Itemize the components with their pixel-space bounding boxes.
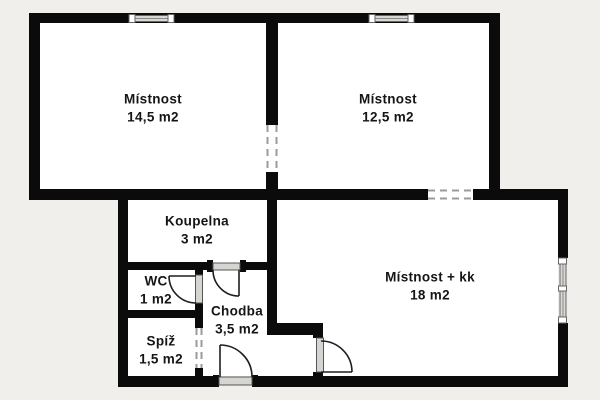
window-icon: [369, 15, 414, 23]
wall-right-bottom-exterior: [558, 189, 568, 258]
wall-center-partition: [266, 23, 278, 125]
door-frame-block: [207, 260, 213, 272]
room-name: Místnost + kk: [385, 269, 475, 287]
wall-left-bottom-exterior: [118, 189, 128, 387]
door-jamb: [196, 275, 203, 303]
top-section-floor: [40, 23, 489, 189]
door-jamb: [219, 377, 252, 385]
room-area: 3,5 m2: [211, 320, 263, 338]
room-area: 1,5 m2: [139, 350, 183, 368]
wall-bathroom-bottom: [128, 262, 207, 270]
room-name: Místnost: [124, 91, 182, 109]
door-jamb: [317, 338, 324, 372]
room-label-room1: Místnost 14,5 m2: [124, 91, 182, 126]
room-name: Chodba: [211, 303, 263, 321]
wall-wc-hallway: [195, 270, 203, 275]
wall-right-top-exterior: [489, 13, 500, 200]
room-label-wc: WC 1 m2: [140, 273, 172, 308]
room-name: Spíž: [139, 333, 183, 351]
wall-hallway-living: [267, 189, 277, 335]
door-frame-block: [213, 375, 219, 387]
wall-wc-pantry: [128, 310, 203, 318]
window-icon: [559, 258, 567, 323]
wall-mid-horizontal: [473, 189, 568, 200]
room-label-bathroom: Koupelna 3 m2: [165, 213, 229, 248]
room-area: 18 m2: [385, 286, 475, 304]
room-label-hallway: Chodba 3,5 m2: [211, 303, 263, 338]
room-label-pantry: Spíž 1,5 m2: [139, 333, 183, 368]
room-name: Koupelna: [165, 213, 229, 231]
room-area: 3 m2: [165, 230, 229, 248]
door-frame-block: [252, 375, 258, 387]
wall-top-exterior: [29, 13, 500, 23]
floor-plan: Místnost 14,5 m2 Místnost 12,5 m2 Koupel…: [0, 0, 600, 400]
room-name: Místnost: [359, 91, 417, 109]
room-area: 1 m2: [140, 290, 172, 308]
wall-bathroom-bottom: [246, 262, 267, 270]
wall-bottom-exterior: [252, 376, 568, 387]
wall-bottom-exterior: [118, 376, 219, 387]
room-area: 12,5 m2: [359, 108, 417, 126]
wall-mid-horizontal: [29, 189, 428, 200]
door-jamb: [213, 263, 240, 270]
window-icon: [129, 15, 174, 23]
room-name: WC: [140, 273, 172, 291]
door-frame-block: [313, 372, 323, 378]
room-label-living: Místnost + kk 18 m2: [385, 269, 475, 304]
room-label-room2: Místnost 12,5 m2: [359, 91, 417, 126]
wall-pantry-hallway: [195, 368, 203, 376]
door-frame-block: [240, 260, 246, 272]
door-frame-block: [313, 330, 323, 338]
floor-plan-drawing: [0, 0, 600, 400]
room-area: 14,5 m2: [124, 108, 182, 126]
wall-center-partition: [266, 172, 278, 189]
wall-left-top-exterior: [29, 13, 40, 200]
